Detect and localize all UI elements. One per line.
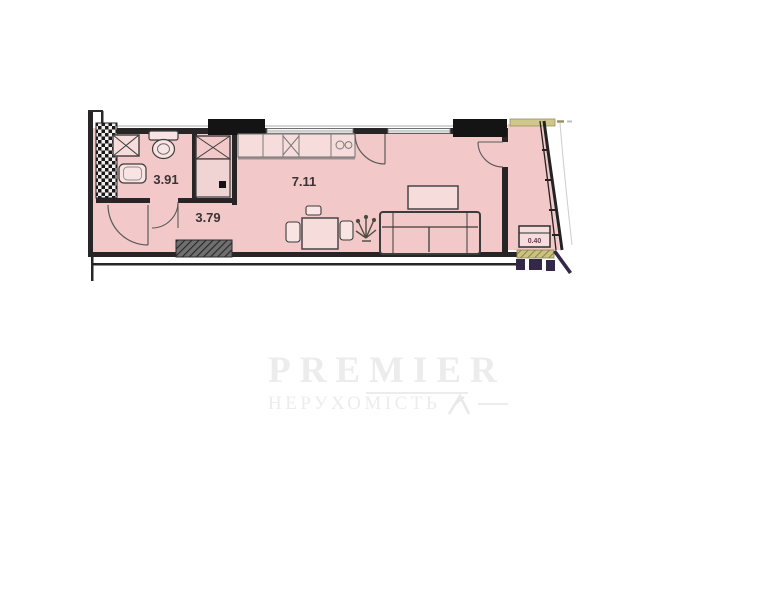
washing-machine [113,135,139,156]
watermark-brand: PREMIER [268,351,508,391]
watermark-roof-icon [447,393,471,415]
vent-shaft [96,123,117,198]
floor-plan: 3.91 3.79 7.11 0.40 [0,0,757,600]
duct-box [196,136,230,197]
sofa [380,212,480,254]
watermark: PREMIER НЕРУХОМІСТЬ [268,351,508,415]
watermark-underline [366,392,468,394]
watermark-subtitle: НЕРУХОМІСТЬ [268,393,440,415]
doormat [176,240,232,257]
room-label-hallway: 3.79 [195,210,220,225]
coffee-table [408,186,458,209]
watermark-line [478,403,508,405]
room-label-kitchen-living: 7.11 [292,174,317,189]
column-left [208,119,265,135]
room-label-balcony: 0.40 [528,238,542,245]
kitchen-counter [238,134,355,159]
floor-plan-image: 3.91 3.79 7.11 0.40 PREMIER НЕРУХОМІСТЬ [0,0,757,600]
column-right [453,119,507,137]
room-label-bathroom: 3.91 [153,172,178,187]
sink [119,164,146,183]
